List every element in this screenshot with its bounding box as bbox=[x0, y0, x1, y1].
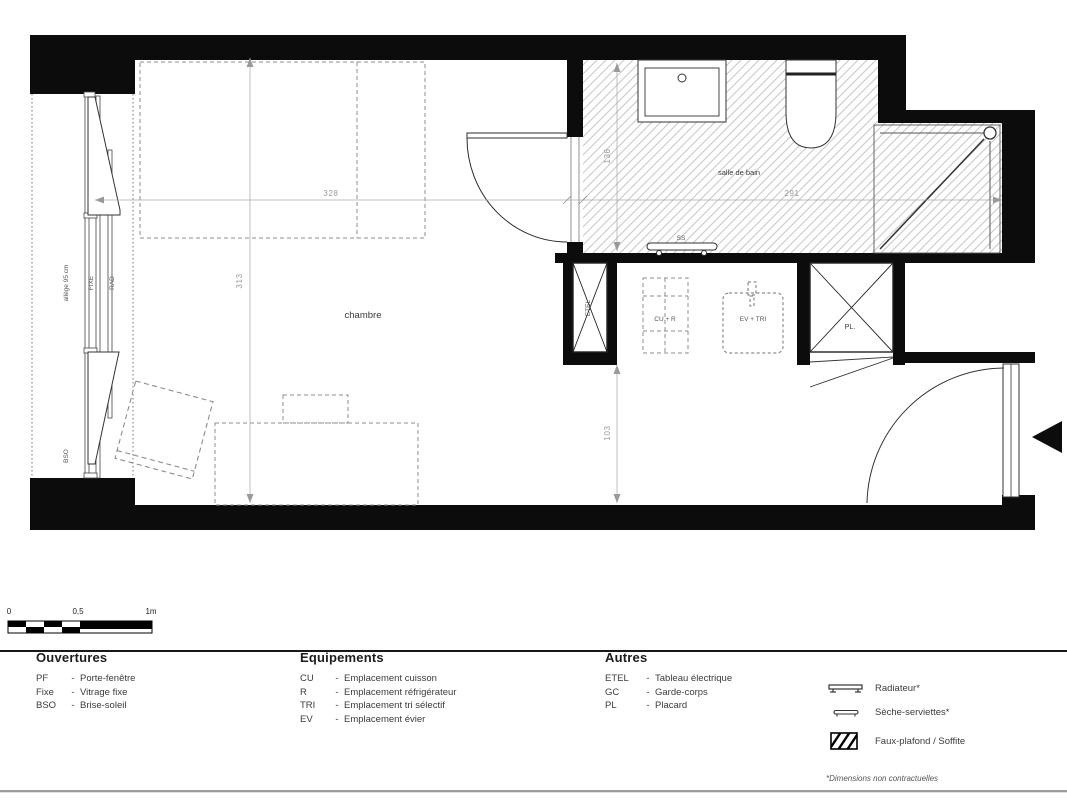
chambre-label: chambre bbox=[345, 310, 382, 321]
dim-chambre-width: 328 bbox=[323, 189, 338, 198]
floor-plan-page: allège 95 cm FIXE RAD BSO SS bbox=[0, 0, 1067, 800]
rad-label: RAD bbox=[109, 276, 116, 290]
cu-r-label: CU + R bbox=[654, 316, 676, 323]
scale-bar: 0 0,5 1m bbox=[7, 607, 157, 633]
bathroom-door bbox=[467, 133, 579, 242]
scale-half-label: 0,5 bbox=[72, 607, 84, 616]
legend-item-etel: ETEL-Tableau électrique bbox=[605, 672, 732, 686]
dim-bath-width: 291 bbox=[784, 189, 799, 198]
pl-label: PL. bbox=[845, 324, 856, 331]
legend-ouvertures-title: Ouvertures bbox=[36, 650, 135, 665]
entrance-door bbox=[867, 364, 1019, 503]
legend-item-pl: PL-Placard bbox=[605, 699, 732, 713]
stool-outline bbox=[115, 381, 213, 479]
legend-item-faux-plafond: Faux-plafond / Soffite bbox=[826, 731, 965, 752]
legend-item-cu: CU-Emplacement cuisson bbox=[300, 672, 456, 686]
legend-autres-title: Autres bbox=[605, 650, 732, 665]
legend-item-fixe: Fixe-Vitrage fixe bbox=[36, 686, 135, 700]
legend-item-pf: PF-Porte-fenêtre bbox=[36, 672, 135, 686]
placard-door bbox=[810, 357, 893, 387]
legend-item-ev: EV-Emplacement évier bbox=[300, 713, 456, 727]
legend-autres: Autres ETEL-Tableau électrique GC-Garde-… bbox=[605, 650, 732, 713]
legend-ouvertures: Ouvertures PF-Porte-fenêtre Fixe-Vitrage… bbox=[36, 650, 135, 713]
towel-dryer-icon bbox=[826, 708, 866, 718]
window-leaf-lower bbox=[88, 352, 119, 464]
placard-box bbox=[810, 263, 893, 352]
scale-zero-label: 0 bbox=[7, 607, 12, 616]
desk-outline bbox=[215, 395, 418, 505]
legend-item-radiateur: Radiateur* bbox=[826, 682, 965, 694]
legend-symbols: Radiateur* Sèche-serviettes* Faux-plafon… bbox=[826, 682, 965, 765]
dim-bath-depth: 136 bbox=[603, 148, 612, 163]
legend-item-seche-serviettes: Sèche-serviettes* bbox=[826, 707, 965, 718]
etel-label: ETEL bbox=[585, 299, 592, 316]
bottom-rule bbox=[0, 790, 1067, 793]
legend-item-bso: BSO-Brise-soleil bbox=[36, 699, 135, 713]
legend-equipements: Equipements CU-Emplacement cuisson R-Emp… bbox=[300, 650, 456, 726]
sink-icon bbox=[638, 60, 726, 122]
floor-plan-drawing: allège 95 cm FIXE RAD BSO SS bbox=[0, 0, 1067, 645]
fixe-label: FIXE bbox=[88, 275, 95, 290]
legend-item-tri: TRI-Emplacement tri sélectif bbox=[300, 699, 456, 713]
radiator-icon bbox=[826, 682, 866, 694]
allege-label: allège 95 cm bbox=[63, 265, 70, 302]
legend-divider bbox=[0, 650, 1067, 652]
salle-de-bain-label: salle de bain bbox=[718, 168, 760, 177]
legend-item-r: R-Emplacement réfrigérateur bbox=[300, 686, 456, 700]
dim-hall-depth: 103 bbox=[603, 425, 612, 440]
scale-one-label: 1m bbox=[145, 607, 156, 616]
legend-item-gc: GC-Garde-corps bbox=[605, 686, 732, 700]
bed-outline bbox=[140, 62, 425, 238]
dimensions-footnote: *Dimensions non contractuelles bbox=[826, 774, 938, 783]
ev-tri-label: EV + TRI bbox=[740, 316, 767, 323]
entrance-arrow-icon bbox=[1032, 421, 1062, 453]
legend-equipements-title: Equipements bbox=[300, 650, 456, 665]
dim-chambre-depth: 313 bbox=[235, 273, 244, 288]
ss-label: SS bbox=[677, 235, 686, 242]
window-assembly bbox=[32, 92, 133, 478]
bso-label: BSO bbox=[63, 449, 70, 463]
ceiling-hatch-icon bbox=[826, 731, 866, 752]
toilet-icon bbox=[786, 60, 836, 148]
